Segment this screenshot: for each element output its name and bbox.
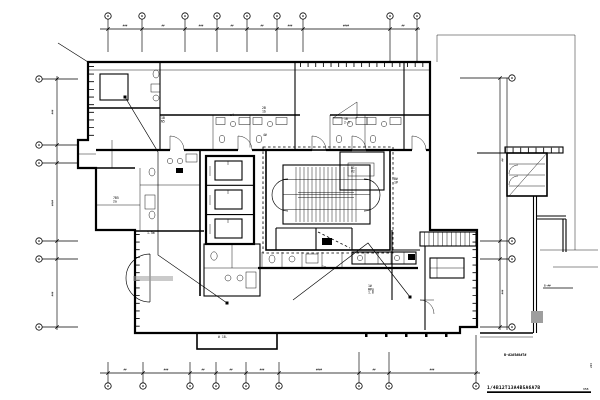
right-leader-note: B-## bbox=[544, 284, 551, 288]
sheet-title: 1/4B12T13A4B5A6A7B bbox=[487, 385, 540, 391]
dim-text: #### bbox=[316, 368, 323, 372]
grid-bubble-mark bbox=[216, 15, 218, 17]
sheet-title-tail: 95B bbox=[583, 387, 589, 391]
grid-bubble-mark bbox=[511, 258, 513, 260]
suite-fixtures bbox=[216, 118, 401, 143]
grid-bubble-mark bbox=[389, 15, 391, 17]
grid-bubble-mark bbox=[511, 326, 513, 328]
grid-bubble-mark bbox=[38, 144, 40, 146]
annotation-text: 1BN5 bbox=[161, 116, 165, 123]
dim-text: ## bbox=[229, 368, 233, 372]
annotation-text: 1g bbox=[322, 265, 326, 269]
dim-text: ## bbox=[372, 368, 376, 372]
margin-note: 2#4 bbox=[589, 363, 593, 368]
grid-bubble-mark bbox=[511, 240, 513, 242]
dim-text: #### bbox=[51, 199, 55, 206]
dim-text: ### bbox=[164, 368, 169, 372]
grid-bubble-mark bbox=[38, 326, 40, 328]
grid-bubble-mark bbox=[511, 77, 513, 79]
grid-bubble-mark bbox=[107, 15, 109, 17]
dim-text: ### bbox=[288, 24, 293, 28]
dim-text: ## bbox=[401, 24, 405, 28]
dim-text: ### bbox=[260, 368, 265, 372]
dim-text: ### bbox=[51, 109, 55, 114]
grid-bubble-mark bbox=[38, 78, 40, 80]
dim-text: ### bbox=[51, 291, 55, 296]
annotation-text: 1#W#g1.8 bbox=[368, 284, 374, 295]
interior-walls bbox=[78, 62, 476, 330]
grid-bubble-mark bbox=[189, 385, 191, 387]
wiring-lines bbox=[58, 43, 412, 305]
dim-text: #### bbox=[343, 24, 350, 28]
annotations-layer: 1BN5a42B1b1B2-67B52a4#B1#2B#1#1g1#W#g1.8… bbox=[113, 106, 398, 339]
grid-bubble-mark bbox=[358, 385, 360, 387]
grid-bubble-mark bbox=[278, 385, 280, 387]
dim-text: ## bbox=[501, 158, 505, 162]
dim-text: ### bbox=[199, 24, 204, 28]
grid-bubble-mark bbox=[38, 240, 40, 242]
grid-bubble-mark bbox=[142, 385, 144, 387]
grid-bubble-mark bbox=[107, 385, 109, 387]
building-exterior bbox=[78, 62, 477, 349]
dim-text: ### bbox=[501, 289, 505, 294]
grid-bubble-mark bbox=[276, 15, 278, 17]
grid-bubble-mark bbox=[245, 385, 247, 387]
grid-bubble-mark bbox=[38, 258, 40, 260]
west-fixtures bbox=[145, 70, 197, 219]
annotation-text: 2B1b bbox=[262, 106, 266, 113]
grid-bubble-mark bbox=[184, 15, 186, 17]
floor-plan-sheet: 1BN5a42B1b1B2-67B52a4#B1#2B#1#1g1#W#g1.8… bbox=[0, 0, 600, 400]
grid-bubble-mark bbox=[38, 162, 40, 164]
grid-bubble-mark bbox=[475, 385, 477, 387]
dim-text: ## bbox=[161, 24, 165, 28]
annotation-text: 7B52a bbox=[113, 196, 119, 203]
dim-text: ## bbox=[230, 24, 234, 28]
title-underline bbox=[487, 391, 591, 393]
wing-note: B-#2#5#8#7# bbox=[504, 353, 527, 357]
annotation-text: B#1# bbox=[394, 177, 398, 184]
bathroom-fixtures bbox=[145, 70, 415, 263]
annotation-text: # 18. bbox=[218, 335, 228, 339]
grid-bubble-mark bbox=[246, 15, 248, 17]
dim-text: ## bbox=[260, 24, 264, 28]
dim-text: ### bbox=[430, 368, 435, 372]
title-block: 1/4B12T13A4B5A6A7B 95B B-#2#5#8#7# B-## … bbox=[487, 284, 593, 394]
core-escalator bbox=[263, 147, 393, 253]
annotation-text: 1.5m bbox=[147, 231, 155, 235]
grid-bubble-mark bbox=[388, 385, 390, 387]
grid-bubble-mark bbox=[302, 15, 304, 17]
grid-bubble-mark bbox=[416, 15, 418, 17]
dim-text: ### bbox=[123, 24, 128, 28]
annotation-text: B1#2 bbox=[351, 166, 355, 173]
grid-bubble-mark bbox=[215, 385, 217, 387]
grid-bubble-mark bbox=[141, 15, 143, 17]
annotation-text: 4# bbox=[263, 133, 267, 137]
dim-text: ## bbox=[201, 368, 205, 372]
elevator-bank bbox=[204, 156, 260, 296]
right-wing bbox=[477, 147, 566, 337]
annotation-text: a4 bbox=[230, 113, 234, 117]
dim-text: ## bbox=[123, 368, 127, 372]
